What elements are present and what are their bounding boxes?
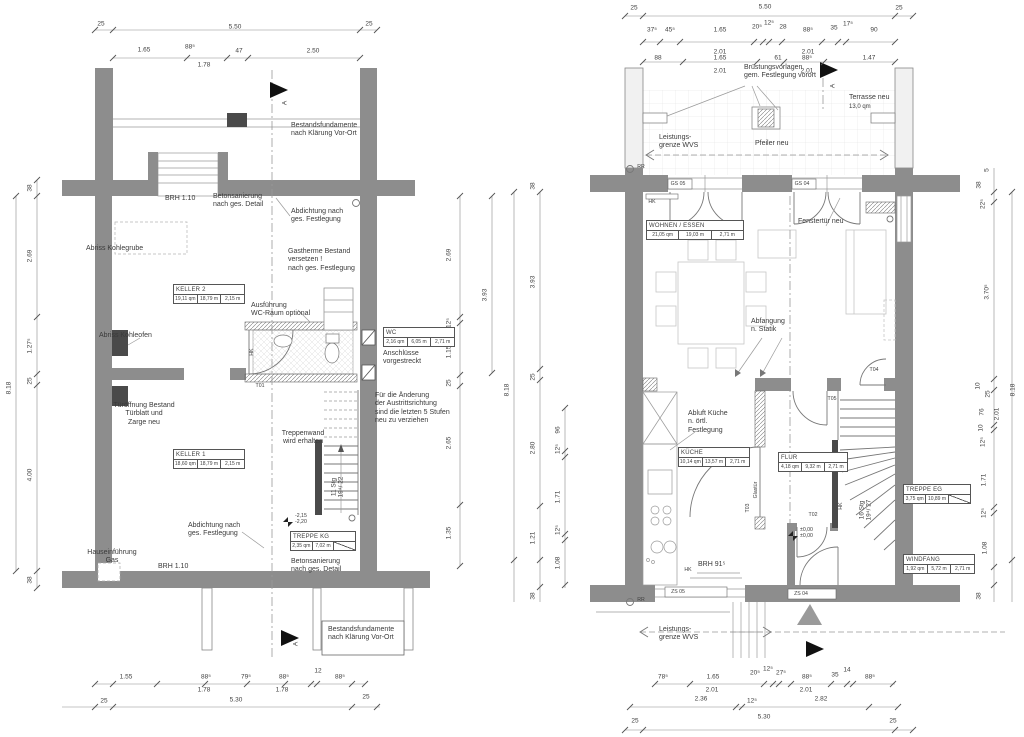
note-abriss-kohlegrube: Abriss Kohlegrube xyxy=(86,245,143,253)
dim-label: 1.71 xyxy=(554,491,561,504)
dim-label: 25 xyxy=(362,694,369,701)
dim-label: 2.01 xyxy=(706,687,719,694)
dim-label: 38 xyxy=(975,592,982,599)
dim-label: 25 xyxy=(445,379,452,386)
level-marker-label: ±0,00 ±0,00 xyxy=(800,527,813,539)
door-tag: T05 xyxy=(828,396,837,402)
dim-label: 1.08 xyxy=(554,557,561,570)
dim-label: 1.78 xyxy=(276,687,289,694)
dim-label: 20⁵ xyxy=(750,670,760,677)
room-height-empty xyxy=(333,542,355,550)
note-gastherme: Gastherme Bestand versetzen ! nach ges. … xyxy=(288,248,355,273)
dim-label: 1.27⁵ xyxy=(26,338,33,353)
stair-count-label: 11 Stg 19⁴/ 22 xyxy=(331,477,346,498)
room-name: KÜCHE xyxy=(679,448,749,458)
dim-label: 1.65 xyxy=(714,55,727,62)
door-tag: T04 xyxy=(870,367,879,373)
room-name: WOHNEN / ESSEN xyxy=(647,221,743,231)
dim-label: 20⁵ xyxy=(752,24,762,31)
radiator-tag: HK xyxy=(250,348,256,355)
room-area: 2,16 qm xyxy=(384,338,407,346)
note-bestandsfundamente-bottom: Bestandsfundamente nach Klärung Vor-Ort xyxy=(328,626,394,643)
dim-label: 25 xyxy=(631,718,638,725)
dim-label: 4.00 xyxy=(26,469,33,482)
dim-label: 61 xyxy=(774,55,781,62)
dim-label: 88⁵ xyxy=(803,27,813,34)
room-height: 2,71 m xyxy=(950,565,974,573)
room-label-treppe-kg: TREPPE KG 2,35 qm 7,02 m xyxy=(290,531,356,551)
dim-label: 2.50 xyxy=(307,48,320,55)
note-tueroeffnung: Türöffnung Bestand Türblatt und Zarge ne… xyxy=(106,402,182,427)
dim-label: 1.15 xyxy=(445,346,452,359)
note-wc-optional: Ausführung WC-Raum optional xyxy=(251,302,310,319)
rr-tag: RR xyxy=(637,164,645,170)
room-perimeter: 6,05 m xyxy=(407,338,431,346)
room-height: 2,71 m xyxy=(824,463,847,471)
dim-label: 2.36 xyxy=(695,696,708,703)
note-abdichtung-bottom: Abdichtung nach ges. Festlegung xyxy=(188,522,240,539)
dim-label: 90 xyxy=(870,27,877,34)
dim-label: 12⁵ xyxy=(764,20,774,27)
dim-label: 1.08 xyxy=(981,542,988,555)
dim-label: 88⁵ xyxy=(185,44,195,51)
dim-label: 38 xyxy=(26,184,33,191)
room-perimeter: 5,72 m xyxy=(927,565,951,573)
section-marker-label: A xyxy=(829,84,836,88)
dim-label: 12⁵ xyxy=(554,444,561,454)
door-tag: T01 xyxy=(256,383,265,389)
dim-label: 35 xyxy=(831,672,838,679)
room-label-windfang: WINDFANG 1,92 qm 5,72 m 2,71 m xyxy=(903,554,975,574)
dim-label: 5.50 xyxy=(229,24,242,31)
room-perimeter: 18,79 m xyxy=(197,295,221,303)
dim-label: 8.18 xyxy=(5,382,12,395)
room-label-flur: FLUR 4,18 qm 9,32 m 2,71 m xyxy=(778,452,848,472)
note-abriss-kohleofen: Abriss Kohleofen xyxy=(99,332,152,340)
dim-label: 37⁵ xyxy=(647,27,657,34)
dim-label: 12⁵ xyxy=(554,525,561,535)
level-marker-label: -2,15 -2,20 xyxy=(295,513,307,525)
dim-label: 25 xyxy=(26,377,33,384)
note-fenstertuer: Fenstertür neu xyxy=(798,218,844,226)
room-name: KELLER 1 xyxy=(174,450,244,460)
right-plan xyxy=(511,13,1015,733)
dim-label: 1.78 xyxy=(198,687,211,694)
dim-label: 1.55 xyxy=(120,674,133,681)
dim-label: 17⁵ xyxy=(843,21,853,28)
dim-label: 14 xyxy=(843,667,850,674)
dim-label: 96 xyxy=(554,426,561,433)
radiator-tag: HK xyxy=(839,502,845,509)
door-tag: T03 xyxy=(746,504,752,513)
room-height: 2,71 m xyxy=(430,338,454,346)
room-height: 2,15 m xyxy=(220,460,244,468)
dim-label: 76 xyxy=(978,408,985,415)
dim-label: 25 xyxy=(529,373,536,380)
dim-label: 8.18 xyxy=(503,384,510,397)
dim-label: 3.70⁵ xyxy=(983,284,990,299)
dim-label: 5 xyxy=(983,168,990,172)
room-name: KELLER 2 xyxy=(174,285,244,295)
room-label-wc: WC 2,16 qm 6,05 m 2,71 m xyxy=(383,327,455,347)
note-anschluesse: Anschlüsse vorgestreckt xyxy=(383,350,421,367)
dim-label: 1.65 xyxy=(714,27,727,34)
room-area: 2,35 qm xyxy=(291,542,312,550)
dim-label: 2.01 xyxy=(800,687,813,694)
dim-label: 22⁵ xyxy=(979,199,986,209)
dim-label: 2.01 xyxy=(714,68,727,75)
room-area: 4,18 qm xyxy=(779,463,801,471)
dim-label: 25 xyxy=(889,718,896,725)
dim-label: 12⁵ xyxy=(979,437,986,447)
dim-label: 45⁵ xyxy=(665,27,675,34)
room-height: 2,71 m xyxy=(725,458,749,466)
dim-label: 35 xyxy=(830,25,837,32)
note-leistungsgrenze-top: Leistungs- grenze WVS xyxy=(659,134,698,151)
room-perimeter: 19,03 m xyxy=(678,231,710,239)
dim-label: 2.80 xyxy=(529,442,536,455)
dim-label: 47 xyxy=(235,48,242,55)
dim-label: 88 xyxy=(654,55,661,62)
stair-count-label: 16 Stg 19⁴/ 27 xyxy=(859,500,874,521)
note-bestandsfundamente-top: Bestandsfundamente nach Klärung Vor-Ort xyxy=(291,122,357,139)
dim-label: 38 xyxy=(529,182,536,189)
dim-label: 10 xyxy=(974,382,981,389)
window-tag: GS 04 xyxy=(795,181,810,187)
dim-label: 1.65 xyxy=(138,47,151,54)
room-name: WC xyxy=(384,328,454,338)
room-area: 19,11 qm xyxy=(174,295,197,303)
radiator-tag: HK xyxy=(648,199,655,205)
dim-label: 1.71 xyxy=(980,474,987,487)
room-height-empty xyxy=(948,495,970,503)
note-terrasse: Terrasse neu xyxy=(849,94,889,102)
room-perimeter: 9,32 m xyxy=(801,463,824,471)
room-label-treppe-eg: TREPPE EG 3,75 qm 10,89 m xyxy=(903,484,971,504)
dim-label: 25 xyxy=(630,5,637,12)
dim-label: 1.35 xyxy=(445,527,452,540)
floorplan-canvas: 25 5.50 25 1.65 88⁵ 1.78 47 2.50 38 2.69… xyxy=(0,0,1024,737)
note-bruestungsvorlagen: Brüstungsvorlagen gem. Festlegung vorort xyxy=(744,64,816,81)
room-label-wohnen-essen: WOHNEN / ESSEN 21,05 qm 19,03 m 2,71 m xyxy=(646,220,744,240)
dim-label: 8.18 xyxy=(1009,384,1016,397)
dim-label: 88⁵ xyxy=(335,674,345,681)
dim-label: 79⁵ xyxy=(241,674,251,681)
room-label-kueche: KÜCHE 10,14 qm 13,57 m 2,71 m xyxy=(678,447,750,467)
door-tag: T02 xyxy=(809,512,818,518)
dim-label: 27⁵ xyxy=(776,670,786,677)
rr-tag: RR xyxy=(637,597,645,603)
note-brh-top: BRH 1.10 xyxy=(165,195,195,203)
dim-label: 38 xyxy=(26,576,33,583)
dim-label: 3.93 xyxy=(529,276,536,289)
dim-label: 25 xyxy=(365,21,372,28)
room-perimeter: 10,89 m xyxy=(925,495,947,503)
note-betonsanierung-top: Betonsanierung nach ges. Detail xyxy=(213,193,263,210)
room-name: TREPPE KG xyxy=(291,532,355,542)
note-pfeiler: Pfeiler neu xyxy=(755,140,788,148)
dim-label: 25 xyxy=(97,21,104,28)
note-betonsanierung-bottom: Betonsanierung nach ges. Detail xyxy=(291,558,341,575)
room-height: 2,15 m xyxy=(220,295,244,303)
room-perimeter: 7,02 m xyxy=(312,542,334,550)
room-name: TREPPE EG xyxy=(904,485,970,495)
dim-label: 5.30 xyxy=(230,697,243,704)
door-glastuer-label: Glastür xyxy=(754,482,760,499)
dim-label: 88⁵ xyxy=(279,674,289,681)
dim-label: 5.50 xyxy=(759,4,772,11)
radiator-tag: HK xyxy=(684,567,691,573)
note-hauseinfuehrung-gas: Hauseinführung Gas xyxy=(80,549,144,566)
dim-label: 1.78 xyxy=(198,62,211,69)
dim-label: 12 xyxy=(314,668,321,675)
dim-label: 88⁵ xyxy=(802,55,812,62)
room-label-keller1: KELLER 1 18,60 qm 18,79 m 2,15 m xyxy=(173,449,245,469)
dim-label: 1.65 xyxy=(707,674,720,681)
dim-label: 2.82 xyxy=(815,696,828,703)
room-perimeter: 13,57 m xyxy=(702,458,726,466)
room-area: 3,75 qm xyxy=(904,495,925,503)
note-abdichtung-top: Abdichtung nach ges. Festlegung xyxy=(291,208,343,225)
room-height: 2,71 m xyxy=(711,231,743,239)
room-name: FLUR xyxy=(779,453,847,463)
left-plan xyxy=(13,27,495,710)
dim-label: 1.21 xyxy=(529,532,536,545)
note-leistungsgrenze-bottom: Leistungs- grenze WVS xyxy=(659,626,698,643)
note-abluft: Abluft Küche n. örtl. Festlegung xyxy=(688,410,728,435)
room-area: 10,14 qm xyxy=(679,458,702,466)
dim-label: 88⁵ xyxy=(865,674,875,681)
window-tag: ZS 04 xyxy=(794,591,808,597)
dim-label: 88⁵ xyxy=(201,674,211,681)
section-marker-label: A xyxy=(281,101,288,105)
room-area: 21,05 qm xyxy=(647,231,678,239)
dim-label: 25 xyxy=(100,698,107,705)
dim-label: 12⁵ xyxy=(980,508,987,518)
note-terrasse-area: 13,0 qm xyxy=(849,104,871,111)
window-tag: ZS 05 xyxy=(671,589,685,595)
note-brh-bottom: BRH 1.10 xyxy=(158,563,188,571)
room-area: 18,60 qm xyxy=(174,460,197,468)
dim-label: 3.93 xyxy=(481,289,488,302)
note-abfangung: Abfangung n. Statik xyxy=(751,318,785,335)
dim-label: 38 xyxy=(529,592,536,599)
dim-label: 25 xyxy=(984,390,991,397)
dim-label: 2.65 xyxy=(445,437,452,450)
dim-label: 28 xyxy=(779,24,786,31)
dim-label: 5.30 xyxy=(758,714,771,721)
room-name: WINDFANG xyxy=(904,555,974,565)
dim-label: 88⁵ xyxy=(802,674,812,681)
room-area: 1,92 qm xyxy=(904,565,927,573)
dim-label: 2.69 xyxy=(445,249,452,262)
dim-label: 12⁵ xyxy=(763,666,773,673)
dim-label: 25 xyxy=(895,5,902,12)
window-tag: GS 05 xyxy=(671,181,686,187)
dim-label: 1.47 xyxy=(863,55,876,62)
dim-label: 38 xyxy=(975,181,982,188)
note-stufen: Für die Änderung der Austrittsrichtung s… xyxy=(375,392,450,425)
dim-label: 2.69 xyxy=(26,250,33,263)
dim-label: 10 xyxy=(977,424,984,431)
room-label-keller2: KELLER 2 19,11 qm 18,79 m 2,15 m xyxy=(173,284,245,304)
dim-label: 2.01 xyxy=(993,408,1000,421)
section-marker-label: A xyxy=(292,642,299,646)
dim-label: 78⁵ xyxy=(658,674,668,681)
note-treppenwand: Treppenwand wird erhalten xyxy=(272,430,334,447)
room-perimeter: 18,79 m xyxy=(197,460,221,468)
note-brh-91: BRH 91⁵ xyxy=(698,561,725,569)
dim-label: 12⁵ xyxy=(747,698,757,705)
